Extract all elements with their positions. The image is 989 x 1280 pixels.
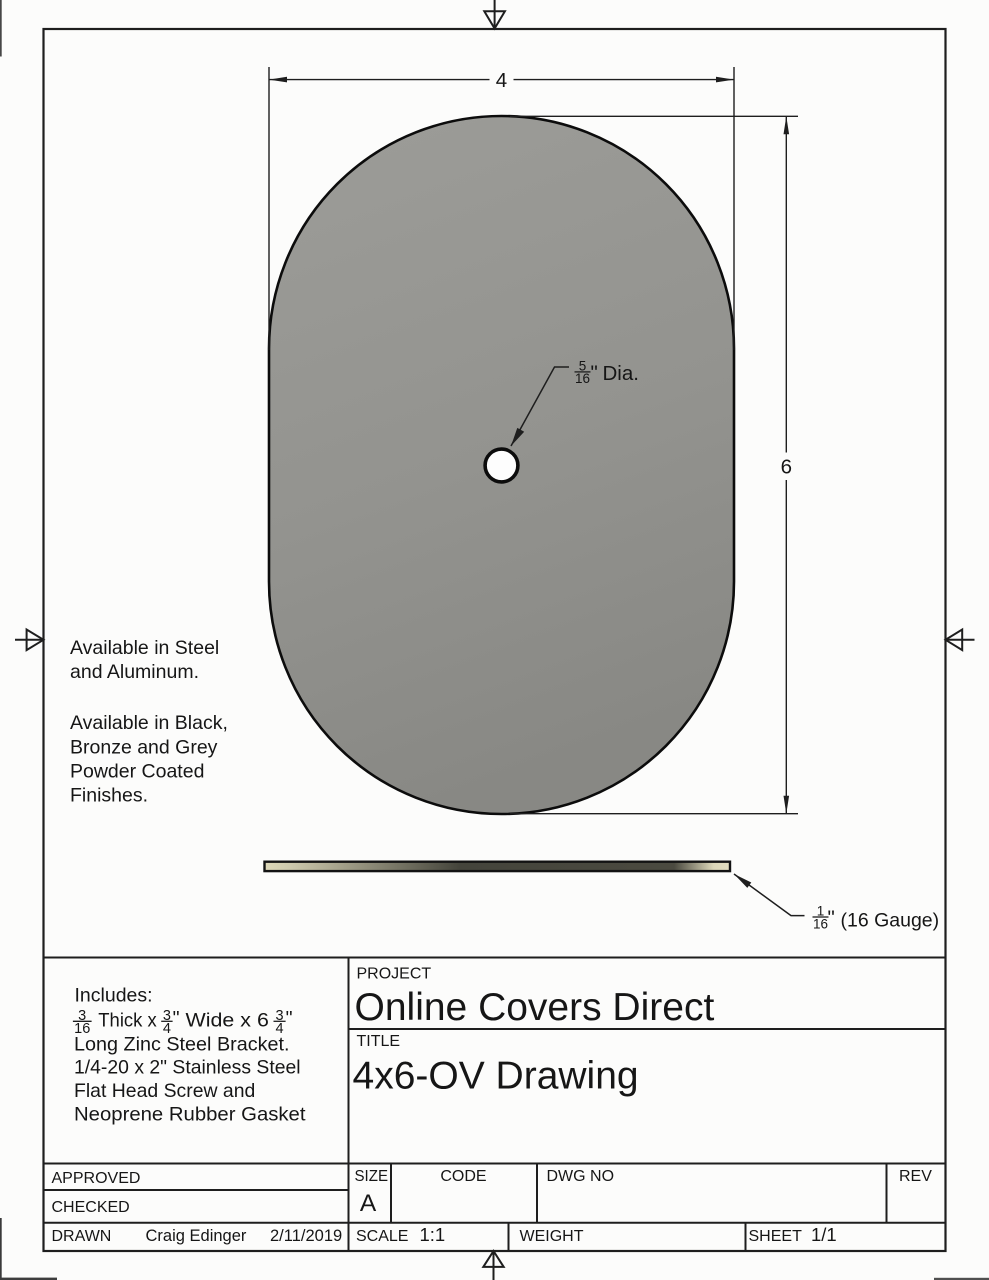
svg-text:CHECKED: CHECKED <box>52 1199 130 1216</box>
svg-text:Powder Coated: Powder Coated <box>70 760 204 782</box>
svg-text:TITLE: TITLE <box>357 1033 401 1050</box>
svg-text:Wide x 6: Wide x 6 <box>186 1009 269 1031</box>
svg-text:SHEET: SHEET <box>749 1228 803 1245</box>
svg-text:WEIGHT: WEIGHT <box>520 1228 584 1245</box>
svg-text:Craig Edinger: Craig Edinger <box>146 1227 247 1245</box>
svg-text:PROJECT: PROJECT <box>357 965 432 982</box>
svg-text:Bronze and Grey: Bronze and Grey <box>70 736 218 758</box>
svg-text:A: A <box>360 1190 377 1217</box>
svg-text:": " <box>173 1008 180 1030</box>
svg-text:Finishes.: Finishes. <box>70 785 148 807</box>
svg-text:4x6-OV Drawing: 4x6-OV Drawing <box>353 1055 639 1098</box>
svg-text:Dia.: Dia. <box>603 362 639 385</box>
svg-text:16: 16 <box>813 916 828 931</box>
svg-text:SIZE: SIZE <box>355 1168 389 1185</box>
svg-text:DRAWN: DRAWN <box>52 1228 112 1245</box>
svg-text:": " <box>591 362 598 385</box>
svg-text:and Aluminum.: and Aluminum. <box>70 661 199 683</box>
svg-text:Long Zinc Steel Bracket.: Long Zinc Steel Bracket. <box>74 1033 290 1055</box>
svg-text:Available in Black,: Available in Black, <box>70 712 228 734</box>
svg-text:2/11/2019: 2/11/2019 <box>270 1227 342 1245</box>
svg-text:16: 16 <box>575 371 590 386</box>
svg-text:Includes:: Includes: <box>75 984 153 1006</box>
svg-text:DWG NO: DWG NO <box>547 1168 615 1185</box>
svg-text:1/4-20 x 2" Stainless Steel: 1/4-20 x 2" Stainless Steel <box>74 1056 301 1078</box>
svg-text:": " <box>286 1008 293 1030</box>
svg-text:4: 4 <box>496 69 507 92</box>
svg-text:Online Covers Direct: Online Covers Direct <box>355 986 715 1029</box>
svg-text:6: 6 <box>781 455 792 478</box>
svg-text:SCALE: SCALE <box>356 1228 408 1245</box>
svg-text:": " <box>828 907 835 930</box>
svg-text:Neoprene Rubber Gasket: Neoprene Rubber Gasket <box>74 1103 306 1125</box>
svg-text:Available in Steel: Available in Steel <box>70 637 219 659</box>
svg-text:Flat Head Screw and: Flat Head Screw and <box>74 1080 255 1102</box>
svg-text:APPROVED: APPROVED <box>52 1170 141 1187</box>
svg-text:1/1: 1/1 <box>811 1224 837 1245</box>
svg-text:CODE: CODE <box>440 1168 486 1185</box>
svg-text:Thick x: Thick x <box>98 1009 157 1031</box>
svg-text:(16 Gauge): (16 Gauge) <box>841 909 940 931</box>
svg-text:1:1: 1:1 <box>420 1224 446 1245</box>
svg-text:REV: REV <box>899 1168 932 1185</box>
